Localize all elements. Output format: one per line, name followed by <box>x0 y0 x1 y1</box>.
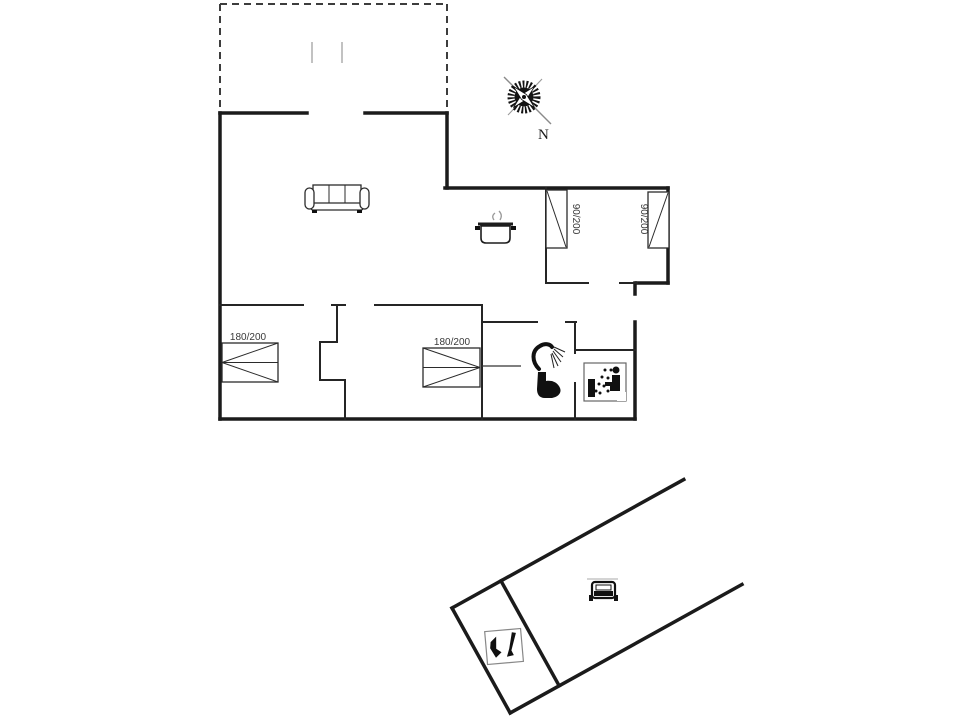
cooking-pot-icon <box>475 211 516 243</box>
bed-size-label: 180/200 <box>230 332 267 343</box>
single-bed-right: 90/200 <box>638 192 669 248</box>
sauna-bucket <box>588 379 595 397</box>
toilet-silhouette <box>537 372 561 398</box>
floor-plan-page: N 90/200 90/200 180/200 <box>0 0 960 720</box>
sofa-armrest-right <box>360 188 369 209</box>
pot-handle-left <box>475 226 480 230</box>
pot-body <box>481 226 510 243</box>
shower-spray <box>551 347 565 368</box>
compass-rose-icon: N <box>504 77 551 143</box>
sofa-foot <box>312 210 317 213</box>
sofa-icon <box>305 185 369 213</box>
sauna-icon <box>584 363 626 401</box>
car-bumper <box>594 591 613 596</box>
bed-size-label: 90/200 <box>570 204 581 235</box>
shower-arm <box>534 344 553 369</box>
pot-steam <box>493 213 495 220</box>
sofa-armrest-left <box>305 188 314 209</box>
double-bed-left: 180/200 <box>222 332 278 382</box>
pot-steam <box>499 211 501 220</box>
sauna-person-head <box>613 367 620 374</box>
car-wheel-left <box>589 595 593 601</box>
car-wheel-right <box>614 595 618 601</box>
toilet-icon <box>537 372 561 398</box>
shower-icon <box>534 344 566 369</box>
compass-north-label: N <box>538 127 549 143</box>
floor-plan-svg: N 90/200 90/200 180/200 <box>0 0 960 720</box>
sauna-bench <box>617 392 626 401</box>
bed-size-label: 90/200 <box>638 204 649 235</box>
pot-handle-right <box>511 226 516 230</box>
compass-center-dot <box>522 95 526 99</box>
car-windshield <box>596 585 611 590</box>
car-icon <box>587 579 618 601</box>
single-bed-left: 90/200 <box>546 190 581 248</box>
double-bed-right: 180/200 <box>423 337 480 387</box>
bed-size-label: 180/200 <box>434 337 471 348</box>
sofa-foot <box>357 210 362 213</box>
sofa-cushions <box>313 185 361 204</box>
sofa-seat-front <box>311 203 363 210</box>
terrace-outline <box>220 4 447 112</box>
garden-tools-icon <box>485 628 524 664</box>
